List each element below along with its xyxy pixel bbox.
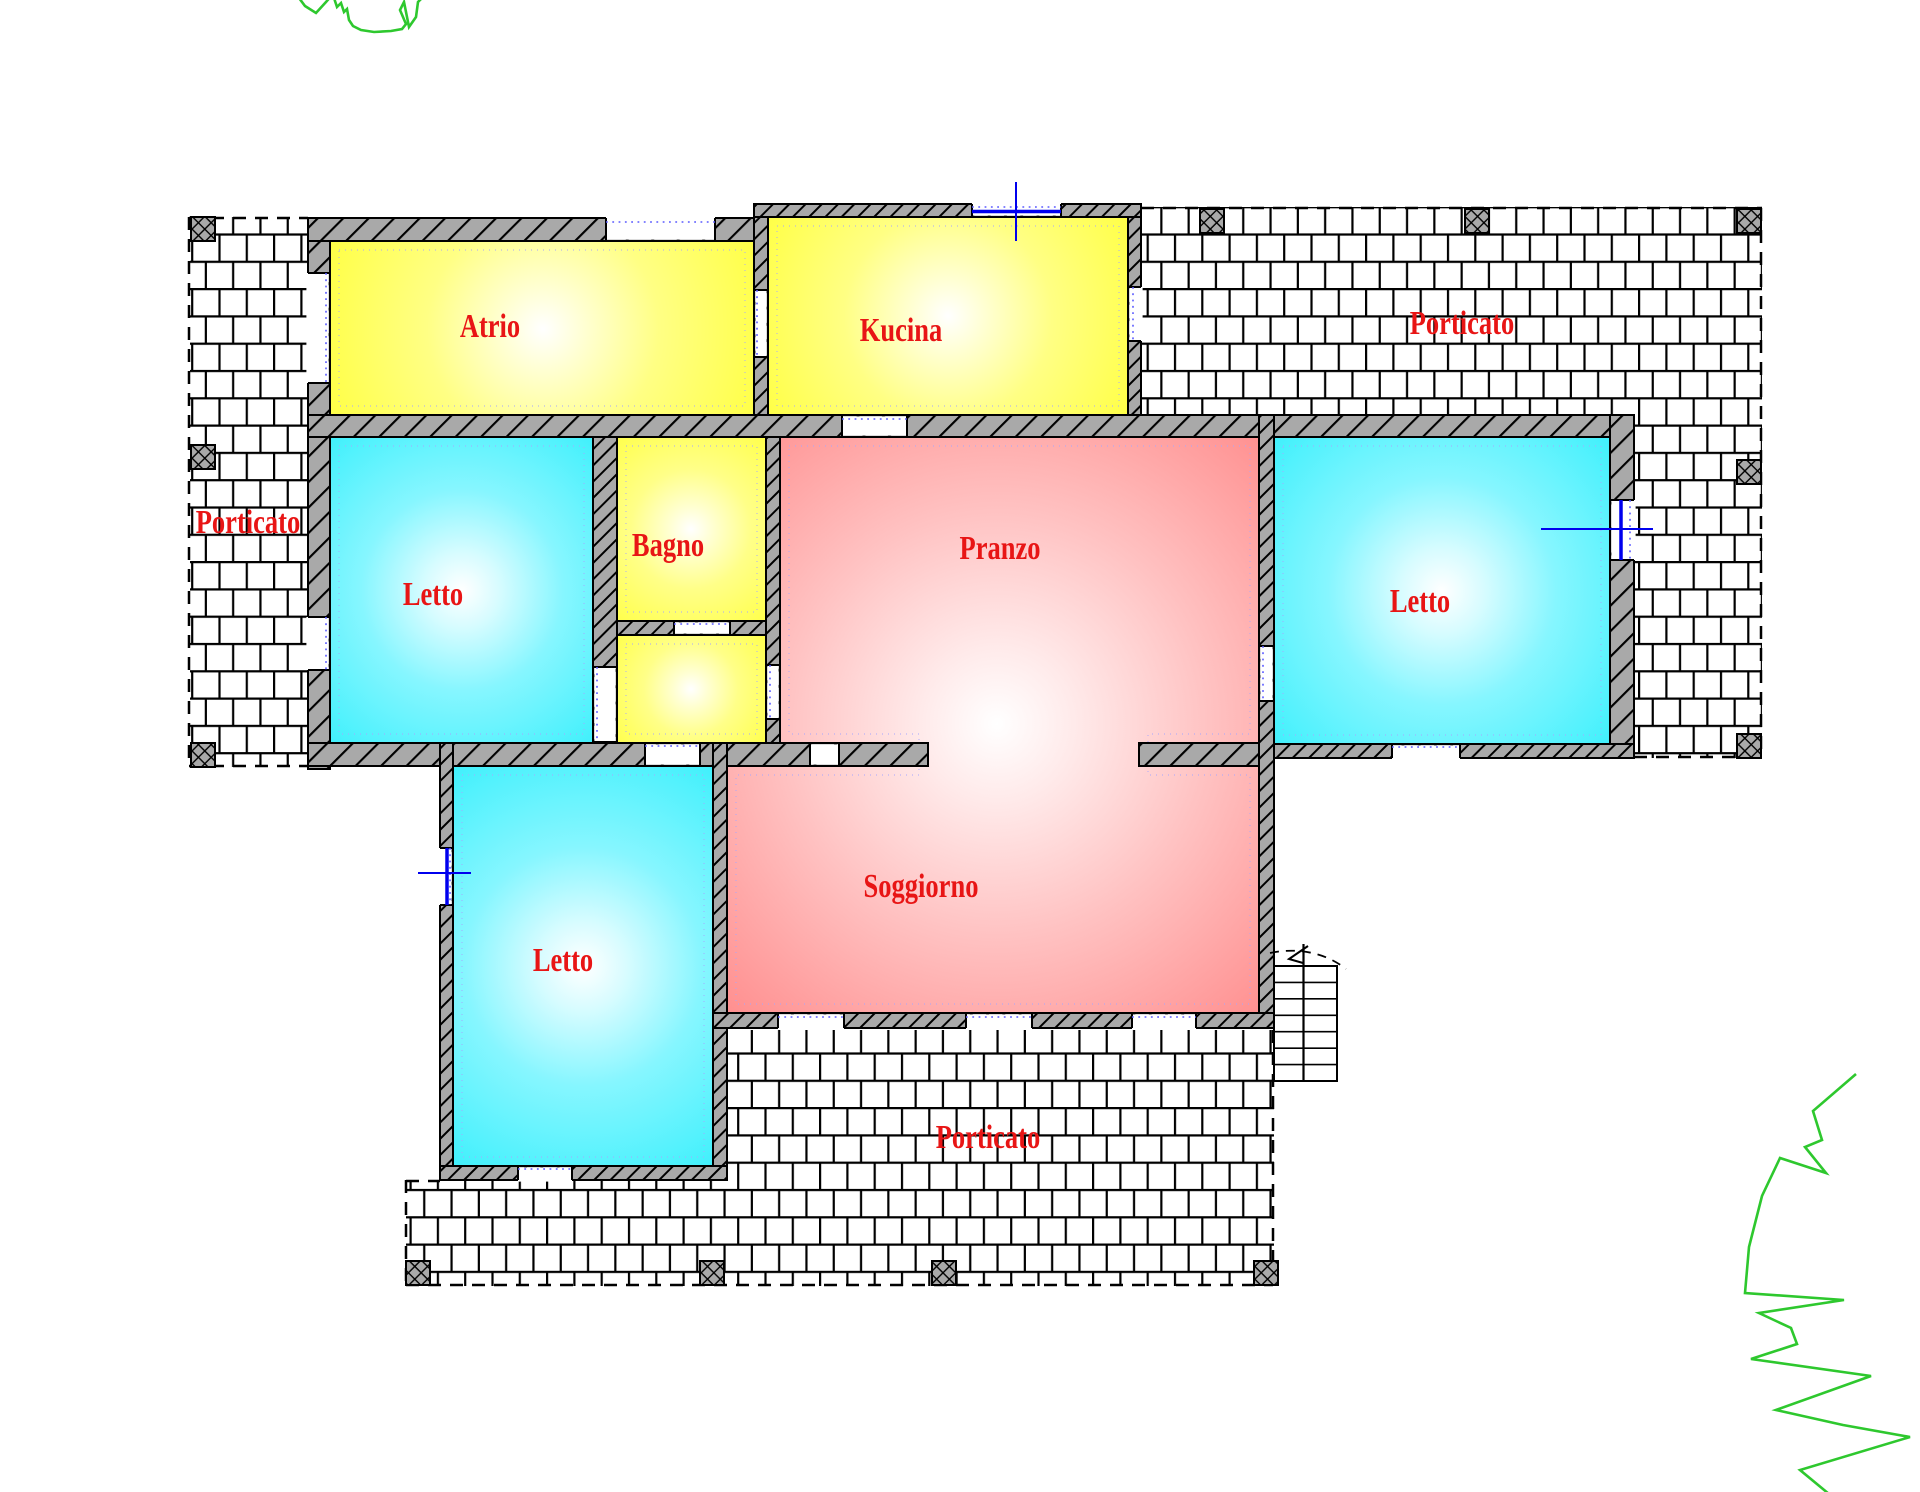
svg-text:Atrio: Atrio	[460, 307, 520, 345]
svg-text:Soggiorno: Soggiorno	[864, 867, 979, 905]
svg-text:Letto: Letto	[1390, 582, 1450, 620]
svg-text:Kucina: Kucina	[860, 311, 943, 349]
svg-text:Porticato: Porticato	[1410, 304, 1515, 342]
svg-text:Letto: Letto	[533, 941, 593, 979]
svg-text:Bagno: Bagno	[632, 526, 704, 564]
svg-text:Pranzo: Pranzo	[960, 529, 1041, 567]
svg-text:Letto: Letto	[403, 575, 463, 613]
svg-text:Porticato: Porticato	[936, 1118, 1041, 1156]
svg-text:Porticato: Porticato	[196, 503, 301, 541]
